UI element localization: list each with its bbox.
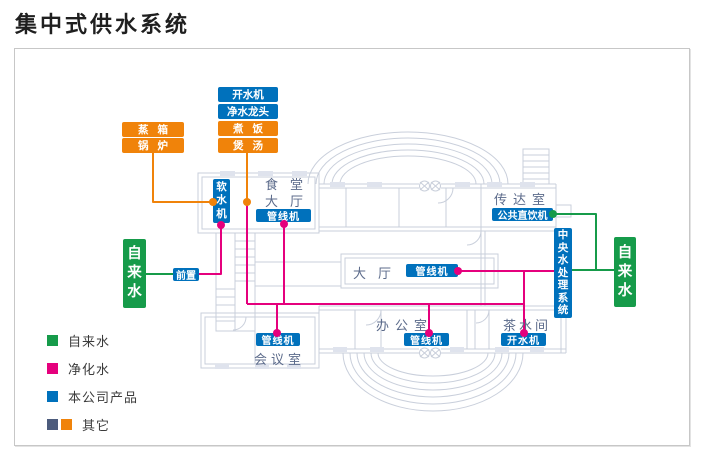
tap-junction-dots: [549, 210, 557, 218]
page-title: 集中式供水系统: [15, 7, 190, 39]
orange-junction-dots: [209, 198, 251, 206]
junction-dots-svg: [15, 49, 689, 445]
purified-junction-dots: [217, 220, 528, 337]
diagram-panel: 蒸箱 锅炉 开水机 净水龙头 煮饭 煲汤 软水机 食堂 大厅 管线机 传达室 公…: [14, 48, 690, 446]
